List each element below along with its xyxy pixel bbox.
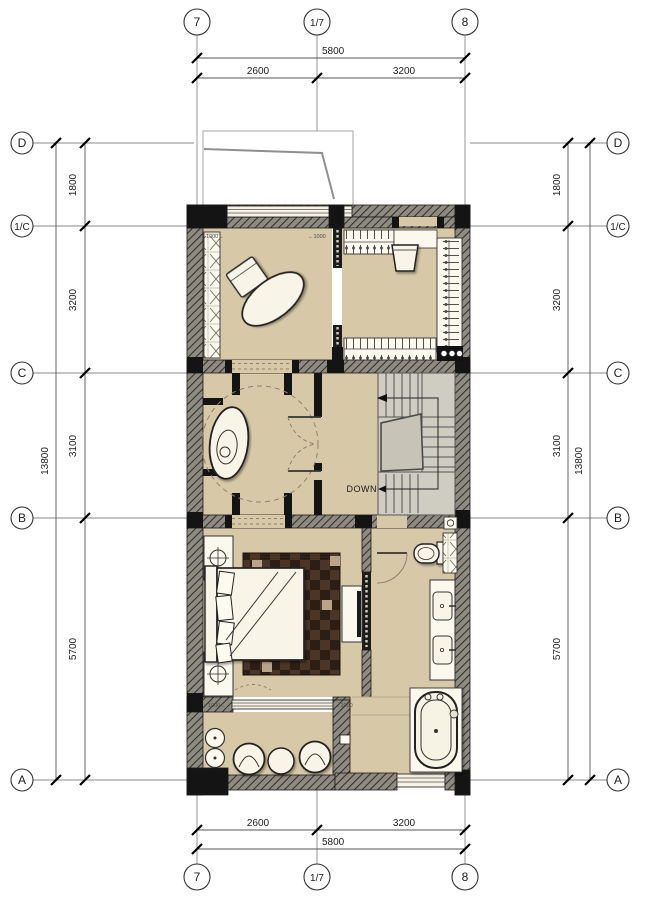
partition-top-junction [329,205,344,228]
lounge-chair-right [300,742,331,773]
dim-right-seg1: 1800 [552,173,563,196]
stairs-down-label: DOWN [347,484,378,494]
grid-label-a-right: A [614,773,622,787]
dim-bottom-total: 5800 [322,837,345,848]
grid-label-b-left: B [18,511,26,525]
window-bedroom-balcony [232,700,333,709]
stair-landing [381,414,423,471]
grid-label-d-left: D [18,136,27,150]
grid-label-b-right: B [614,511,622,525]
dim-right-seg2: 3200 [552,288,563,311]
bath-cabinet-x [443,533,457,573]
grid-label-c-right: C [614,366,623,380]
wall-bottom-mid [335,773,397,790]
grid-label-1-7-top: 1/7 [310,18,324,29]
headboard [205,566,217,662]
closet-stool [392,245,418,271]
wardrobe-right [437,238,462,352]
corner-top-left [187,205,227,228]
dim-right-seg4: 5700 [552,637,563,660]
tv-icon [357,591,361,637]
roof-outline [203,131,353,205]
door-label: ←1000 [335,703,353,709]
double-vanity [430,580,456,680]
grid-label-1-7-bottom: 1/7 [310,873,324,884]
shoe-cabinet [437,346,463,361]
wall-top-niche [398,217,437,226]
dim-top-seg1: 2600 [247,66,270,77]
pillow [216,643,232,663]
toilet [414,542,445,564]
pillow [216,595,233,620]
floor-plan-page: 7 1/7 8 7 1/7 8 D 1/C C B A D 1/C C B A … [0,0,660,900]
grid-label-1c-right: 1/C [610,222,626,233]
floor-drain [444,517,457,529]
balcony-table [268,748,294,774]
pocket-door-top [332,228,343,360]
wall-niche-box [340,735,350,744]
dim-right-total: 13800 [574,447,585,475]
grid-label-8-top: 8 [462,15,469,29]
dim-bottom-seg2: 3200 [393,818,416,829]
door-label: ←1000 [308,234,326,240]
pocket-door-bedroom [362,528,371,697]
hand-shower-icon [450,710,458,718]
grid-label-7-top: 7 [194,15,201,29]
door-label: 1000→ [206,234,224,240]
dim-right-seg3: 3100 [552,434,563,457]
dim-bottom-seg1: 2600 [247,818,270,829]
corner-bottom-right [455,770,470,795]
bed [205,566,304,663]
wall-balcony-front [228,775,335,790]
grid-label-d-right: D [614,136,623,150]
dim-left-seg3: 3100 [68,434,79,457]
drain-icon [434,729,438,733]
bedroom [204,536,362,696]
door-label: 1000→ [208,703,226,709]
bathroom-door-opening [377,515,407,528]
grid-label-c-left: C [18,366,27,380]
dim-left-seg1: 1800 [68,173,79,196]
wardrobe-x-left [204,232,220,358]
lounge-chair-left [234,744,265,775]
tv-stand [342,586,362,642]
dim-top-seg2: 3200 [393,66,416,77]
grid-label-a-left: A [18,773,26,787]
pillow [217,571,235,595]
corner-top-right [455,205,470,228]
grid-label-8-bottom: 8 [462,870,469,884]
bathtub [410,688,462,772]
window-bottom-right [397,774,445,787]
grid-label-1c-left: 1/C [14,222,30,233]
corner-bottom-left [187,768,228,795]
floor-plan-drawing: 7 1/7 8 7 1/7 8 D 1/C C B A D 1/C C B A … [0,0,660,900]
dim-top-total: 5800 [322,46,345,57]
dim-left-total: 13800 [40,447,51,475]
dim-left-seg2: 3200 [68,288,79,311]
grid-label-7-bottom: 7 [194,870,201,884]
dim-left-seg4: 5700 [68,637,79,660]
